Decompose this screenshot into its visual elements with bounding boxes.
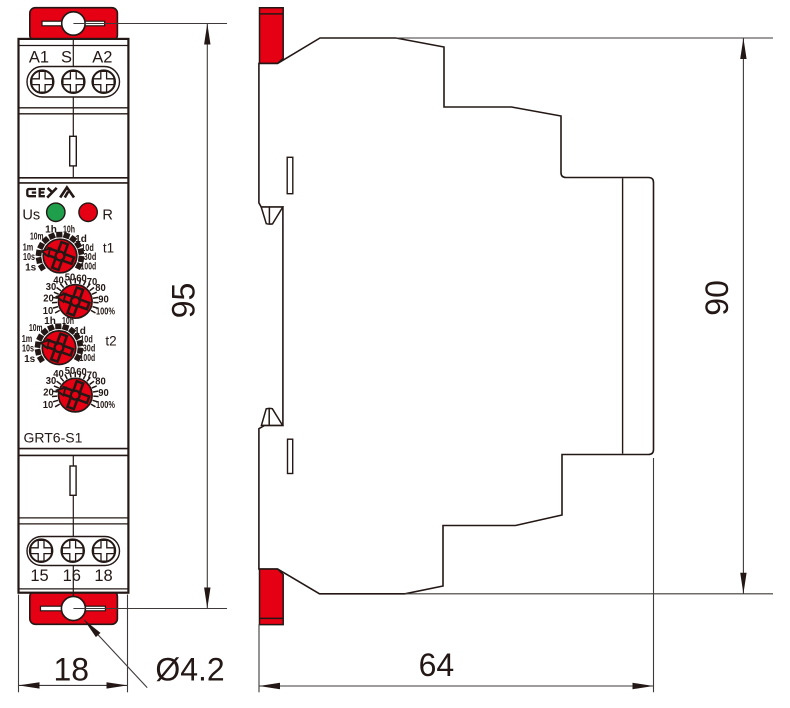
- svg-text:1s: 1s: [24, 354, 36, 365]
- svg-text:10m: 10m: [30, 232, 44, 243]
- svg-text:1h: 1h: [45, 225, 57, 236]
- svg-text:64: 64: [419, 647, 455, 683]
- svg-text:15: 15: [30, 567, 48, 585]
- svg-text:A1: A1: [29, 49, 49, 67]
- svg-text:t2: t2: [105, 334, 116, 349]
- svg-text:10s: 10s: [22, 344, 34, 355]
- svg-text:30: 30: [46, 282, 57, 293]
- svg-text:Us: Us: [22, 208, 40, 224]
- svg-text:60: 60: [76, 367, 87, 378]
- svg-text:Ø4.2: Ø4.2: [155, 652, 224, 688]
- svg-text:18: 18: [54, 652, 90, 688]
- svg-text:90: 90: [699, 280, 735, 316]
- svg-text:100%: 100%: [96, 400, 115, 411]
- svg-text:10s: 10s: [23, 252, 35, 263]
- svg-text:60: 60: [76, 274, 87, 285]
- svg-text:18: 18: [94, 567, 112, 585]
- svg-text:GRT6-S1: GRT6-S1: [24, 430, 83, 446]
- svg-text:100%: 100%: [96, 307, 115, 318]
- svg-text:50: 50: [65, 273, 76, 284]
- svg-text:50: 50: [65, 366, 76, 377]
- svg-text:10h: 10h: [62, 316, 74, 327]
- svg-text:10h: 10h: [63, 225, 75, 236]
- svg-text:20: 20: [43, 387, 54, 398]
- svg-text:100d: 100d: [81, 262, 97, 273]
- svg-text:t1: t1: [103, 241, 114, 256]
- svg-text:10: 10: [43, 400, 54, 411]
- svg-text:90: 90: [98, 294, 109, 305]
- svg-text:20: 20: [43, 294, 54, 305]
- svg-text:30: 30: [46, 376, 57, 387]
- svg-text:R: R: [102, 208, 113, 224]
- svg-text:80: 80: [95, 283, 106, 294]
- svg-text:1h: 1h: [44, 316, 56, 327]
- svg-text:90: 90: [98, 388, 109, 399]
- svg-text:1s: 1s: [25, 263, 37, 274]
- svg-text:100d: 100d: [80, 353, 96, 364]
- svg-text:10m: 10m: [29, 323, 43, 334]
- svg-text:80: 80: [95, 377, 106, 388]
- svg-text:S: S: [61, 49, 72, 67]
- svg-text:95: 95: [166, 283, 202, 319]
- svg-text:A2: A2: [92, 49, 112, 67]
- svg-text:16: 16: [63, 567, 81, 585]
